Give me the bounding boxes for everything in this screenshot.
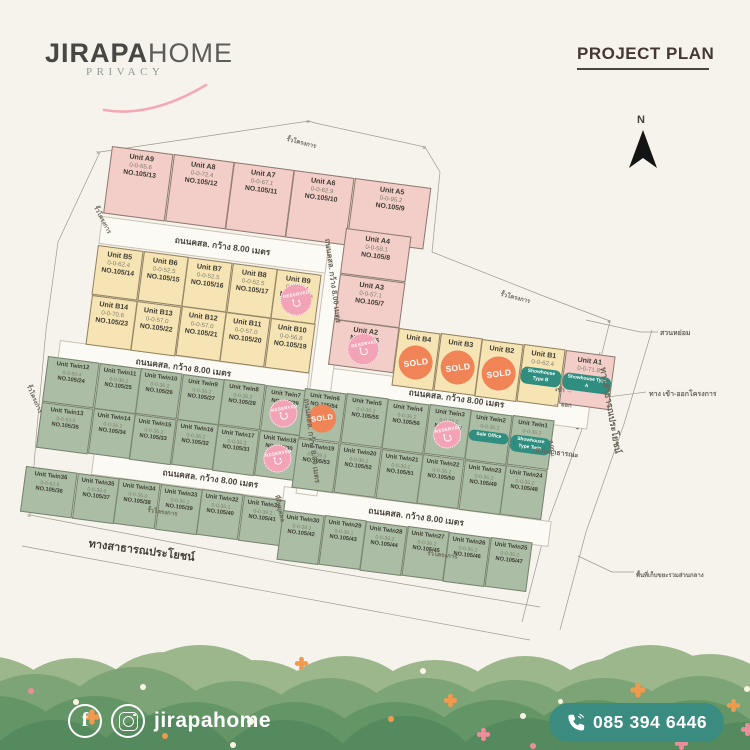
road-label: ถนนคสล. กว้าง 8.00 เมตร xyxy=(174,233,271,259)
plot: Unit Twin36 0-0-52.5 NO.105/36 xyxy=(20,466,78,518)
plot: Unit Twin3 0-0-36.2 NO.105/57 RESERVED xyxy=(423,404,471,459)
plot: Unit B6 0-0-52.5 NO.105/15 xyxy=(137,251,188,306)
plot: Unit Twin14 0-0-36.2 NO.105/34 xyxy=(88,408,136,459)
plot-unit-label: Unit B2 xyxy=(481,343,522,357)
status-sticker: SOLD xyxy=(439,349,477,387)
leader-garden xyxy=(586,320,658,332)
plot-unit-label: Unit B3 xyxy=(440,337,481,351)
plot: Unit Twin29 0-0-36.1 NO.105/43 xyxy=(318,515,366,570)
plot: Unit B4 SOLD xyxy=(391,328,440,391)
facebook-icon[interactable]: f xyxy=(68,704,102,738)
annotation-text: N xyxy=(637,114,645,126)
brand-primary: JIRAPA xyxy=(45,38,148,68)
plot: Unit A7 0-0-67.1 NO.105/11 xyxy=(225,162,294,237)
plot: Unit Twin10 0-0-36.2 NO.105/26 xyxy=(135,368,183,419)
plot: Unit A4 0-0-58.1 NO.105/8 xyxy=(340,228,411,282)
phone-icon xyxy=(566,713,585,732)
plot: Unit Twin8 0-0-36.2 NO.105/28 xyxy=(218,379,266,430)
plot: Unit B14 0-0-70.6 NO.105/23 xyxy=(85,295,137,351)
plan-annotation: เข้า → xyxy=(555,384,573,396)
svg-text:×: × xyxy=(27,513,31,520)
plot: Unit B8 0-0-52.5 NO.105/17 xyxy=(226,263,277,318)
plot: Unit A8 0-0-72.4 NO.105/12 xyxy=(165,154,234,229)
plot: Unit Twin22 0-0-36.2 NO.105/50 xyxy=(416,454,464,509)
plan-annotation: พื้นที่เก็บขยะรวมส่วนกลาง xyxy=(636,570,704,580)
plot: Unit B12 0-0-57.0 NO.105/21 xyxy=(175,306,226,361)
smiley-icon xyxy=(440,432,453,442)
phone-number: 085 394 6446 xyxy=(593,712,707,733)
annotation-text: ← ออก xyxy=(553,401,572,409)
plot: Unit B13 0-0-57.0 NO.105/22 xyxy=(130,301,181,356)
instagram-icon[interactable] xyxy=(111,704,145,738)
plot: Unit Twin15 0-0-36.2 NO.105/33 xyxy=(129,414,177,465)
north-arrow-icon xyxy=(629,130,657,168)
smiley-icon xyxy=(289,298,302,308)
status-sticker: SOLD xyxy=(397,344,435,382)
plot: Unit Twin34 0-0-36.0 NO.105/38 xyxy=(113,478,161,529)
plot: Unit Twin2 0-0-36.2 Sale Office xyxy=(464,410,512,465)
plot: Unit Twin4 0-0-36.2 NO.105/56 xyxy=(381,399,429,454)
plot: Unit B2 SOLD xyxy=(474,339,523,402)
status-sticker-label: SOLD xyxy=(486,367,512,381)
plot: Unit Twin12 0-0-50.4 NO.105/24 xyxy=(42,356,100,408)
plot: Unit Twin32 0-0-36.1 NO.105/40 xyxy=(196,489,244,540)
brand-logo: JIRAPAHOME xyxy=(45,38,233,69)
plot: Unit B9 0-0-52.4 NO.105/18 RESERVED xyxy=(270,269,321,324)
leader-waste-area xyxy=(578,556,634,572)
boundary-northeast xyxy=(432,252,610,321)
annotation-text: เข้า → xyxy=(555,387,573,395)
page-title-underline xyxy=(577,68,709,70)
status-sticker-label: SOLD xyxy=(403,356,429,370)
brand-secondary: HOME xyxy=(148,38,233,68)
plot: Unit Twin16 0-0-36.2 NO.105/32 xyxy=(171,419,219,470)
svg-text:×: × xyxy=(96,150,100,157)
svg-text:×: × xyxy=(306,119,310,126)
plot: Unit Twin20 0-0-36.2 NO.105/52 xyxy=(333,443,381,498)
plot: Unit Twin9 0-0-36.2 NO.105/27 xyxy=(177,374,225,425)
plot: Unit Twin17 0-0-36.2 NO.105/31 xyxy=(212,425,260,476)
facebook-glyph: f xyxy=(82,709,89,732)
svg-text:×: × xyxy=(607,319,611,326)
status-sticker: SOLD xyxy=(480,355,518,393)
page-title: PROJECT PLAN xyxy=(577,44,714,64)
smiley-icon xyxy=(277,411,290,421)
social-links: f jirapahome xyxy=(68,704,271,738)
plot: Unit Twin11 0-0-36.2 NO.105/25 xyxy=(94,363,142,414)
plot: Unit A6 0-0-62.9 NO.105/10 xyxy=(285,170,354,245)
plot-unit-label: Unit B4 xyxy=(398,332,439,346)
project-plan-poster: ×× ××× JIRAPAHOME PRIVACY PROJECT PLAN ถ… xyxy=(0,0,750,750)
plot: Unit Twin25 0-0-36.2 NO.105/47 xyxy=(484,537,532,592)
plan-annotation: ทาง เข้า-ออกโครงการ xyxy=(649,389,717,400)
plot: Unit A9 0-0-65.6 NO.105/13 xyxy=(103,146,173,222)
logo-swoosh-icon xyxy=(100,80,210,118)
phone-button[interactable]: 085 394 6446 xyxy=(549,703,724,742)
svg-text:×: × xyxy=(422,145,426,152)
social-handle: jirapahome xyxy=(154,709,271,733)
smiley-icon xyxy=(356,347,369,357)
plot: Unit B5 0-0-62.4 NO.105/14 xyxy=(91,245,143,301)
smiley-icon xyxy=(271,456,284,466)
status-sticker-label: SOLD xyxy=(445,361,471,375)
plot: Unit Twin28 0-0-36.2 NO.105/44 xyxy=(359,521,407,576)
plan-annotation: สวนหย่อม xyxy=(660,328,691,339)
plot: Unit B11 0-0-57.0 NO.105/20 xyxy=(219,312,270,367)
plan-annotation: N xyxy=(637,114,645,126)
annotation-text: พื้นที่เก็บขยะรวมส่วนกลาง xyxy=(636,573,704,579)
plot: Unit B1 0-0-62.4 Showhouse Type B xyxy=(516,344,565,407)
brand-subtitle: PRIVACY xyxy=(86,66,164,78)
annotation-text: 8.00 ม. xyxy=(547,440,555,458)
plot: Unit Twin24 0-0-36.2 NO.105/48 xyxy=(499,465,547,520)
plot: Unit Twin35 0-0-36.0 NO.105/37 xyxy=(72,473,120,524)
annotation-text: ทาง เข้า-ออกโครงการ xyxy=(649,391,717,398)
annotation-text: สวนหย่อม xyxy=(660,330,691,337)
plot: Unit B7 0-0-52.5 NO.105/16 xyxy=(181,257,232,312)
plot: Unit A2 NO.105/6 RESERVED xyxy=(328,319,399,373)
plot: Unit B10 0-0-56.8 NO.105/19 xyxy=(264,318,315,373)
plot: Unit Twin5 0-0-36.2 NO.105/55 xyxy=(340,393,388,448)
